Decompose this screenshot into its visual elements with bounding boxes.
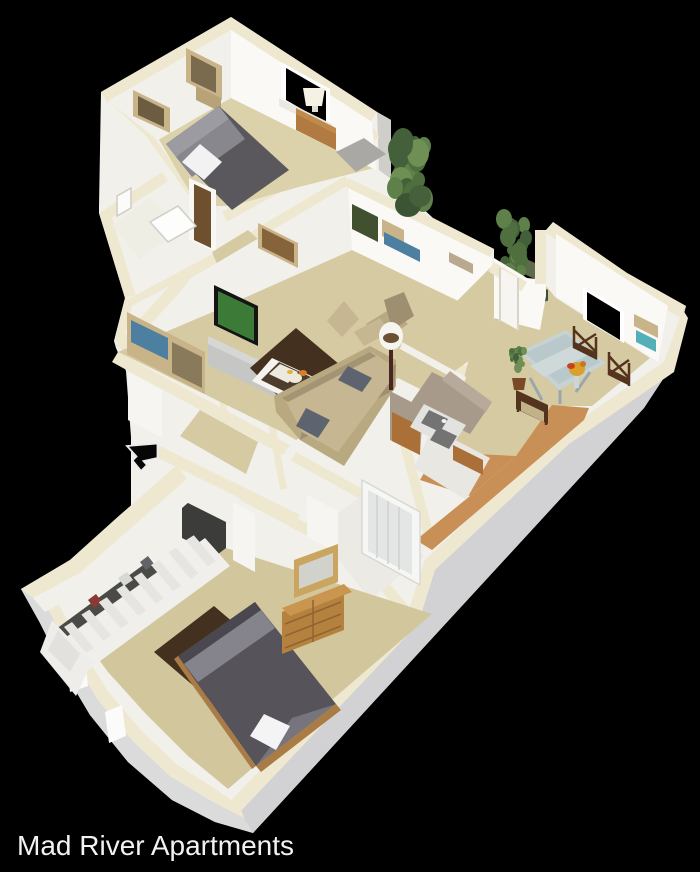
svg-text:Mad River Apartments: Mad River Apartments — [17, 830, 294, 861]
